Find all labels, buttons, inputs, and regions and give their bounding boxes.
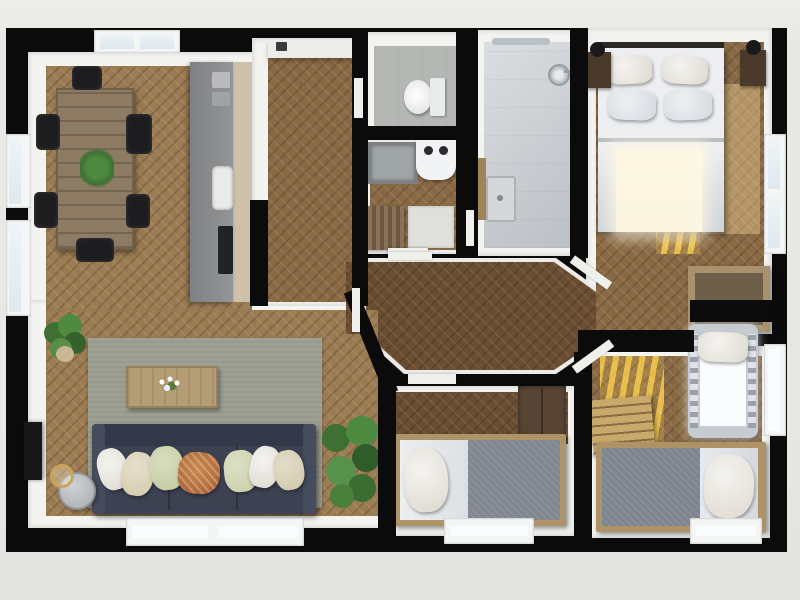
kitchen-appliance-1 — [212, 72, 230, 88]
window-left-1 — [6, 134, 31, 208]
dining-chair-6 — [76, 238, 114, 262]
dining-chair-2 — [36, 114, 60, 150]
master-pillow-3 — [607, 89, 656, 121]
flower-vase — [156, 374, 184, 396]
bed2-blanket — [468, 440, 560, 520]
floorplan-render — [0, 0, 800, 600]
sofa-backrest — [96, 424, 312, 446]
crib-rail-right — [748, 334, 756, 428]
nightstand-right — [740, 50, 766, 86]
crib-pillow — [697, 331, 748, 363]
wash-basin — [486, 176, 516, 222]
toilet-bowl — [404, 80, 432, 114]
wc-door-threshold — [354, 78, 363, 118]
window-master-right — [764, 134, 786, 254]
master-pillow-2 — [661, 55, 708, 85]
basin-faucet — [497, 195, 503, 201]
hallway-top-threshold — [388, 252, 432, 260]
dining-chair-4 — [126, 114, 152, 154]
bathroom-door-threshold — [466, 210, 474, 246]
wall-tv — [24, 422, 42, 480]
window-bedroom3-bottom — [690, 518, 762, 544]
window-crib-right — [764, 344, 786, 436]
dining-chair-5 — [126, 194, 150, 228]
toilet-tank — [430, 78, 445, 116]
dining-chair-3 — [34, 192, 58, 228]
wall-bathroom-master — [570, 28, 588, 258]
wall-wc-laundry — [358, 126, 464, 140]
washer-knob-1 — [424, 146, 433, 155]
window-bedroom2-bottom — [444, 518, 534, 544]
kitchen-appliance-2 — [212, 92, 230, 106]
wall-hook — [276, 42, 287, 51]
dining-chair-1 — [72, 66, 102, 90]
nightstand-left — [586, 52, 611, 88]
wall-corridor-wc — [352, 32, 368, 306]
bed3-blanket — [602, 448, 700, 526]
washing-machine — [416, 138, 456, 180]
ceiling-vent — [492, 38, 550, 45]
master-duvet-fold — [598, 138, 724, 142]
gold-floor-lamp — [50, 464, 74, 488]
bedside-lamp-left — [590, 42, 605, 57]
skylight-dining — [94, 30, 180, 53]
corridor-hall-threshold — [352, 288, 360, 332]
window-living-bottom — [126, 518, 304, 546]
wall-bedroom2-bedroom3 — [574, 352, 592, 540]
monstera-plant — [318, 416, 384, 510]
wall-living-bedroom2 — [378, 376, 396, 542]
master-pillow-4 — [663, 89, 712, 121]
washer-knob-2 — [439, 146, 448, 155]
crib — [688, 324, 758, 438]
wardrobe-door-seam — [541, 388, 543, 438]
dining-table-plant — [80, 146, 114, 190]
storage-bin — [368, 142, 418, 184]
master-pillow-1 — [605, 55, 652, 85]
laundry-floor-mat — [408, 206, 454, 248]
storage-chest — [688, 266, 770, 332]
wall-kitchen-corridor-south — [250, 200, 268, 306]
window-left-2 — [6, 220, 31, 316]
bedroom2-door-threshold — [408, 374, 456, 384]
cooktop — [218, 226, 233, 274]
kitchen-sink — [212, 166, 233, 210]
shower-head — [548, 64, 570, 86]
potted-plant — [42, 312, 90, 364]
bedside-lamp-right — [746, 40, 761, 55]
wall-master-bottom-east — [690, 300, 774, 322]
sofa-armrest-right — [303, 424, 316, 514]
wardrobe — [518, 386, 566, 440]
wooden-drying-rack — [364, 206, 404, 250]
sunlight-on-bed — [616, 148, 702, 232]
floor-entry-hall — [268, 55, 352, 302]
